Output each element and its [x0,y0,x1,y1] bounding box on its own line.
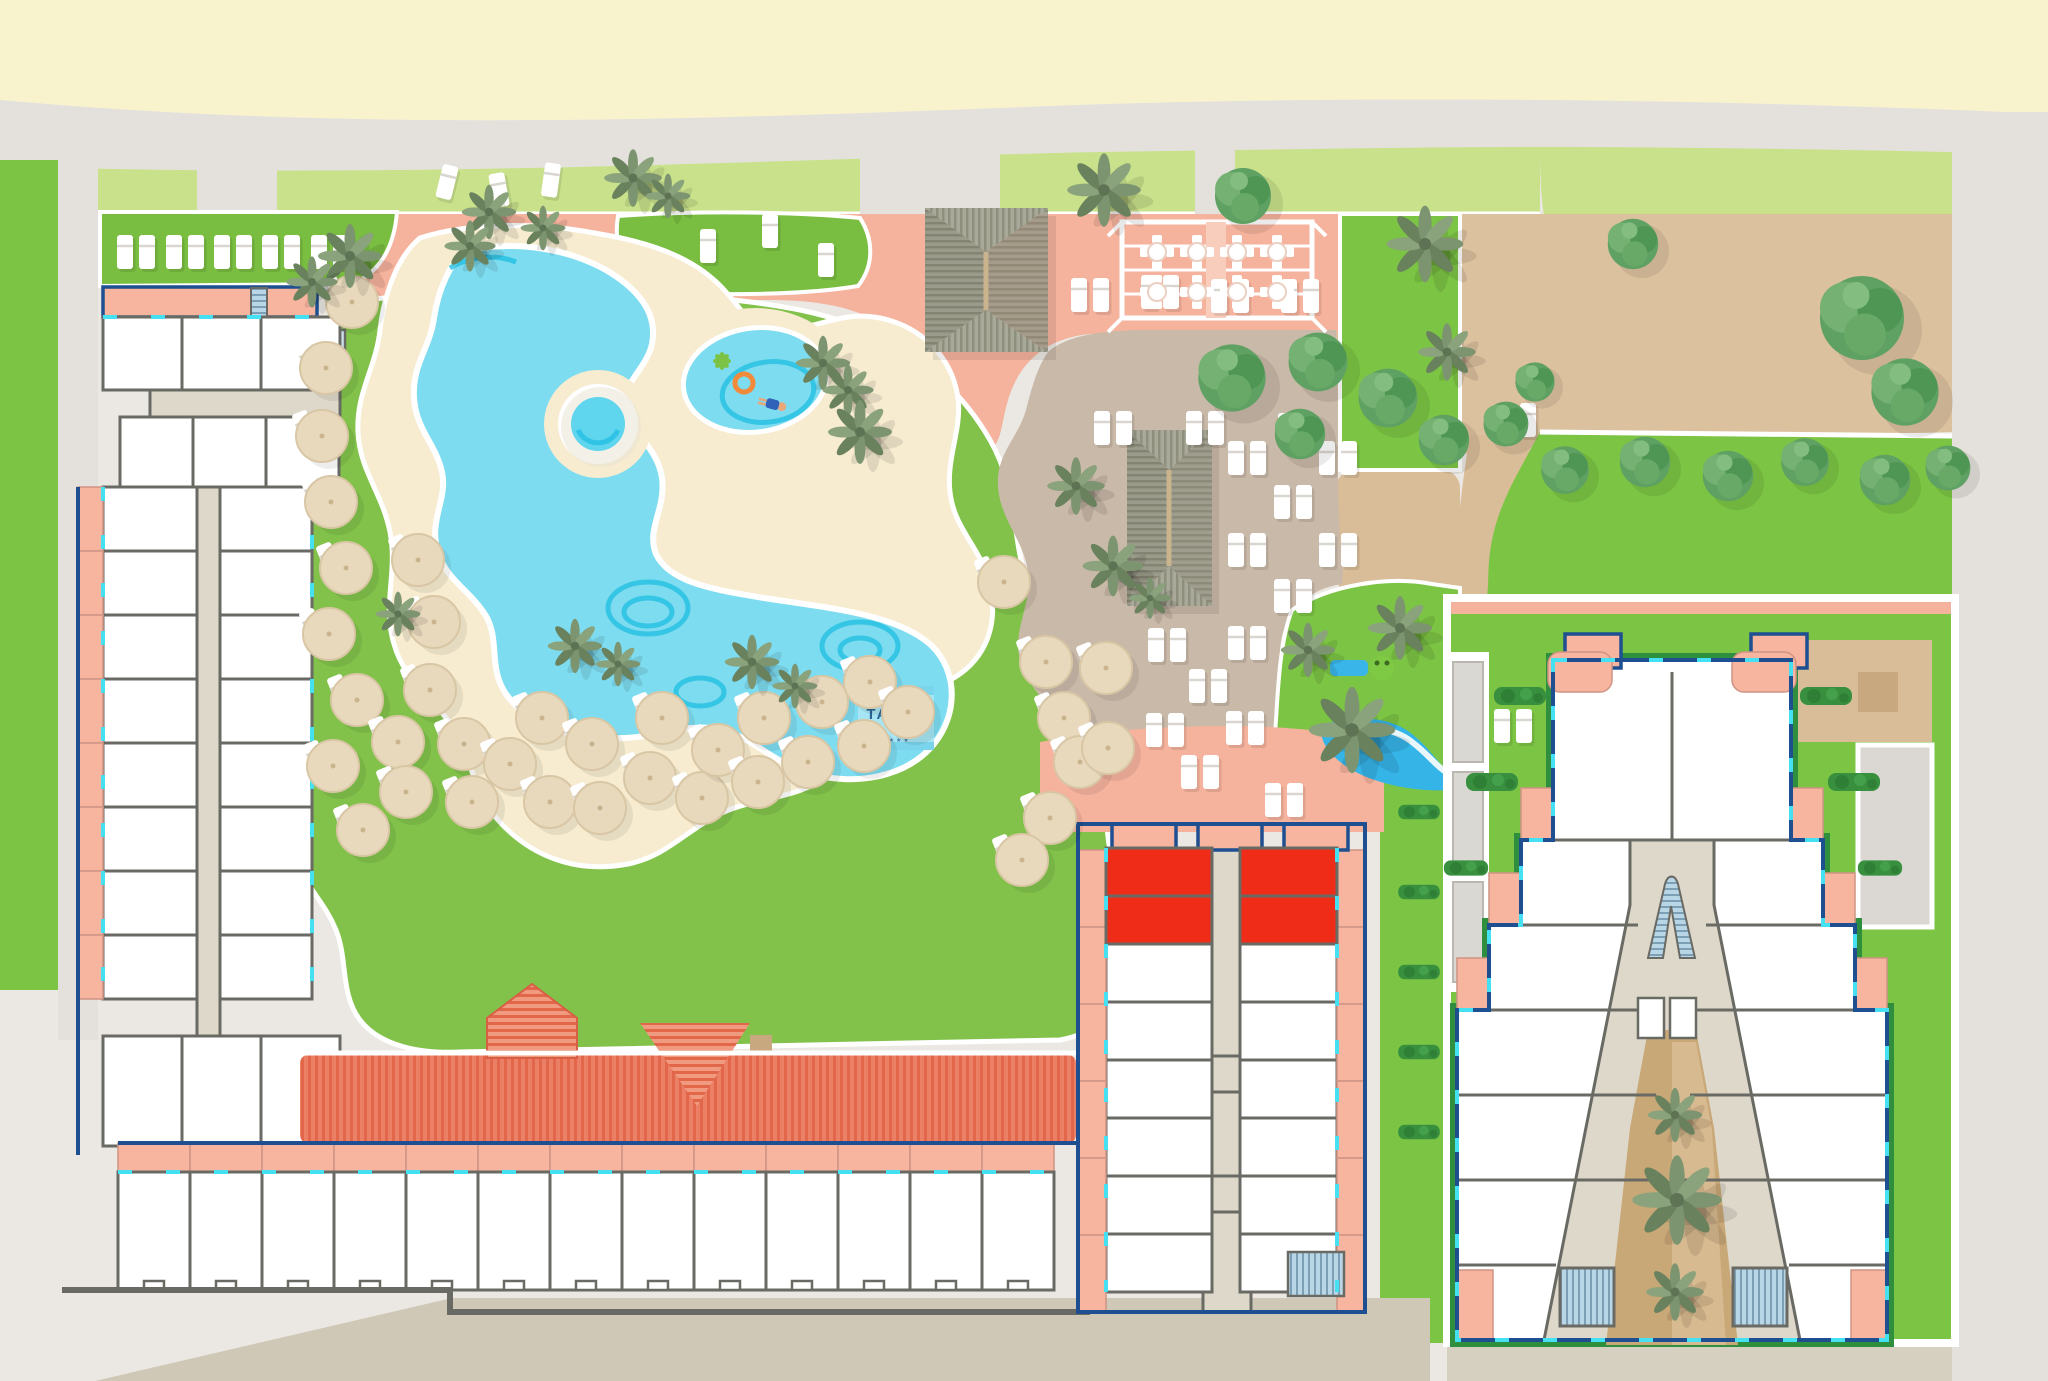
central-building [1078,824,1365,1312]
west-wing-balconies-unit [78,487,103,551]
hedge [1398,1125,1440,1139]
thatch-roof-building [925,208,1056,360]
balcony [1489,873,1521,925]
west-wing-left-rooms-unit[interactable] [103,807,197,871]
west-wing-balconies [78,487,103,999]
south-wing-balconies-unit [190,1143,262,1172]
west-wing-balconies-unit [78,615,103,679]
central-building-left-rooms-unit[interactable] [1106,1176,1212,1234]
south-wing-rooms-unit[interactable] [694,1172,766,1290]
south-wing-rooms-unit[interactable] [334,1172,406,1290]
central-building-left-rooms-unit[interactable] [1106,1002,1212,1060]
central-building-left-balconies-unit [1078,1004,1106,1081]
selected-room[interactable] [1106,896,1212,944]
south-wing-rooms-unit[interactable] [622,1172,694,1290]
west-wing-lower-rooms-unit[interactable] [182,1036,261,1146]
frog-splash-toy [1370,656,1394,680]
south-wing-rooms[interactable] [118,1172,1054,1290]
central-building-left-rooms[interactable] [1106,944,1212,1292]
elevator [1670,998,1696,1038]
central-building-left-rooms-unit[interactable] [1106,1118,1212,1176]
south-wing-rooms-unit[interactable] [406,1172,478,1290]
sand-path [1336,470,1460,594]
central-building-top-balconies-unit [1284,824,1348,850]
central-building-top-balconies [1112,824,1348,850]
garden-frame-band [1451,602,1951,614]
west-wing-left-rooms[interactable] [103,487,197,999]
central-building-right-rooms-unit[interactable] [1240,1002,1337,1060]
west-wing-upper-rooms-unit[interactable] [182,317,261,390]
central-building-right-rooms-unit[interactable] [1240,1060,1337,1118]
south-wing-balconies-unit [118,1143,190,1172]
stair-lobby [1733,1268,1787,1326]
central-building-right-balconies-unit [1337,927,1365,1004]
west-wing-right-rooms-unit[interactable] [220,551,312,615]
building-footing [1447,1343,1952,1381]
door-notch [648,1281,668,1290]
west-wing-balconies-unit [78,743,103,807]
west-wing-balconies-unit [78,807,103,871]
central-building-left-balconies [1078,850,1106,1312]
west-wing-left-rooms-unit[interactable] [103,487,197,551]
central-building-left-balconies-unit [1078,1081,1106,1158]
hedge [1858,860,1902,875]
central-building-right-rooms-unit[interactable] [1240,1118,1337,1176]
south-wing-balconies-unit [622,1143,694,1172]
west-wing-left-rooms-unit[interactable] [103,615,197,679]
central-building-left-balconies-unit [1078,1235,1106,1312]
hedge [1398,885,1440,899]
central-building-right-balconies-unit [1337,850,1365,927]
jacuzzi [544,370,652,478]
south-wing-rooms-unit[interactable] [262,1172,334,1290]
selected-room[interactable] [1106,848,1212,896]
side-road [1952,112,2048,1381]
south-wing-balconies-unit [550,1143,622,1172]
south-wing-rooms-unit[interactable] [478,1172,550,1290]
south-wing-rooms-unit[interactable] [118,1172,190,1290]
walkway [860,148,1000,214]
garden-structure [1858,672,1898,712]
selected-room[interactable] [1240,848,1337,896]
west-wing-lower-rooms-unit[interactable] [103,1036,182,1146]
west-wing-right-rooms-unit[interactable] [220,807,312,871]
south-wing-balconies-unit [262,1143,334,1172]
central-building-top-balconies-unit [1198,824,1262,850]
elevator [1638,998,1664,1038]
hedge [1800,687,1852,705]
south-wing-balconies-unit [406,1143,478,1172]
hedge [1398,965,1440,979]
balcony [1823,873,1855,925]
west-wing-middle-rooms-unit[interactable] [193,417,266,487]
hedge [1466,773,1518,791]
door-notch [576,1281,596,1290]
west-wing-balconies-unit [78,935,103,999]
balcony [1855,958,1887,1010]
south-wing-balconies-unit [838,1143,910,1172]
central-building-right-balconies-unit [1337,1081,1365,1158]
hedge [1398,1045,1440,1059]
central-building-left-rooms-unit[interactable] [1106,944,1212,1002]
west-wing-right-rooms-unit[interactable] [220,615,312,679]
west-wing-right-rooms-unit[interactable] [220,679,312,743]
balcony [1851,1270,1887,1340]
hedge [1828,773,1880,791]
door-notch [864,1281,884,1290]
sun-lounger [818,243,837,280]
beach [0,0,2048,120]
balcony [1521,788,1553,840]
balcony [1457,958,1489,1010]
central-building-left-balconies-unit [1078,927,1106,1004]
roof-terrace [103,287,317,317]
central-building-right-balconies-unit [1337,1004,1365,1081]
central-building-right-rooms-unit[interactable] [1240,944,1337,1002]
hedge [1494,687,1546,705]
west-wing-right-rooms-unit[interactable] [220,487,312,551]
central-building-top-balconies-unit [1112,824,1176,850]
door-notch [1008,1281,1028,1290]
south-wing-balconies-unit [334,1143,406,1172]
selected-room[interactable] [1240,896,1337,944]
west-wing-balconies-unit [78,871,103,935]
sun-lounger [700,229,719,266]
south-wing-rooms-unit[interactable] [982,1172,1054,1290]
west-wing-left-rooms-unit[interactable] [103,743,197,807]
central-building-left-balconies-unit [1078,850,1106,927]
resort-map-stage: TAHITI PLAYA ★★★★ [0,0,2048,1381]
central-building-left-rooms-unit[interactable] [1106,1060,1212,1118]
south-wing-rooms-unit[interactable] [550,1172,622,1290]
stair-lobby [1560,1268,1614,1326]
sun-lounger [762,214,781,251]
door-notch [792,1281,812,1290]
south-wing-rooms-unit[interactable] [838,1172,910,1290]
west-wing-right-rooms[interactable] [220,487,312,999]
west-wing-left-rooms-unit[interactable] [103,871,197,935]
central-building-right-rooms[interactable] [1240,944,1337,1292]
south-wing-balconies [118,1143,1054,1172]
south-wing-rooms-unit[interactable] [910,1172,982,1290]
south-wing-balconies-unit [766,1143,838,1172]
south-wing-balconies-unit [478,1143,550,1172]
sports-court [1858,745,1932,927]
hedge [1444,860,1488,875]
door-notch [720,1281,740,1290]
west-wing-middle-rooms-unit[interactable] [120,417,193,487]
west-wing-right-rooms-unit[interactable] [220,871,312,935]
central-building-right-balconies [1337,850,1365,1312]
balcony [1457,1270,1493,1340]
central-building-right-rooms-unit[interactable] [1240,1176,1337,1234]
central-building-left-balconies-unit [1078,1158,1106,1235]
south-wing-rooms-unit[interactable] [766,1172,838,1290]
central-building-right-balconies-unit [1337,1158,1365,1235]
west-wing-left-rooms-unit[interactable] [103,679,197,743]
hedge [1398,805,1440,819]
west-wing-upper-rooms-unit[interactable] [103,317,182,390]
west-wing-left-rooms-unit[interactable] [103,551,197,615]
south-wing-rooms-unit[interactable] [190,1172,262,1290]
float-starfish [713,352,731,370]
balcony [1791,788,1823,840]
west-wing-balconies-unit [78,679,103,743]
south-wing-balconies-unit [910,1143,982,1172]
door-notch [504,1281,524,1290]
resort-map: TAHITI PLAYA ★★★★ [0,0,2048,1381]
south-wing-balconies-unit [694,1143,766,1172]
door-notch [936,1281,956,1290]
central-building-left-rooms-unit[interactable] [1106,1234,1212,1292]
south-wing-balconies-unit [982,1143,1054,1172]
west-wing-right-rooms-unit[interactable] [220,743,312,807]
west-wing-right-rooms-unit[interactable] [220,935,312,999]
walkway [197,150,277,216]
west-wing-balconies-unit [78,551,103,615]
west-wing-left-rooms-unit[interactable] [103,935,197,999]
verge-green [0,160,58,990]
